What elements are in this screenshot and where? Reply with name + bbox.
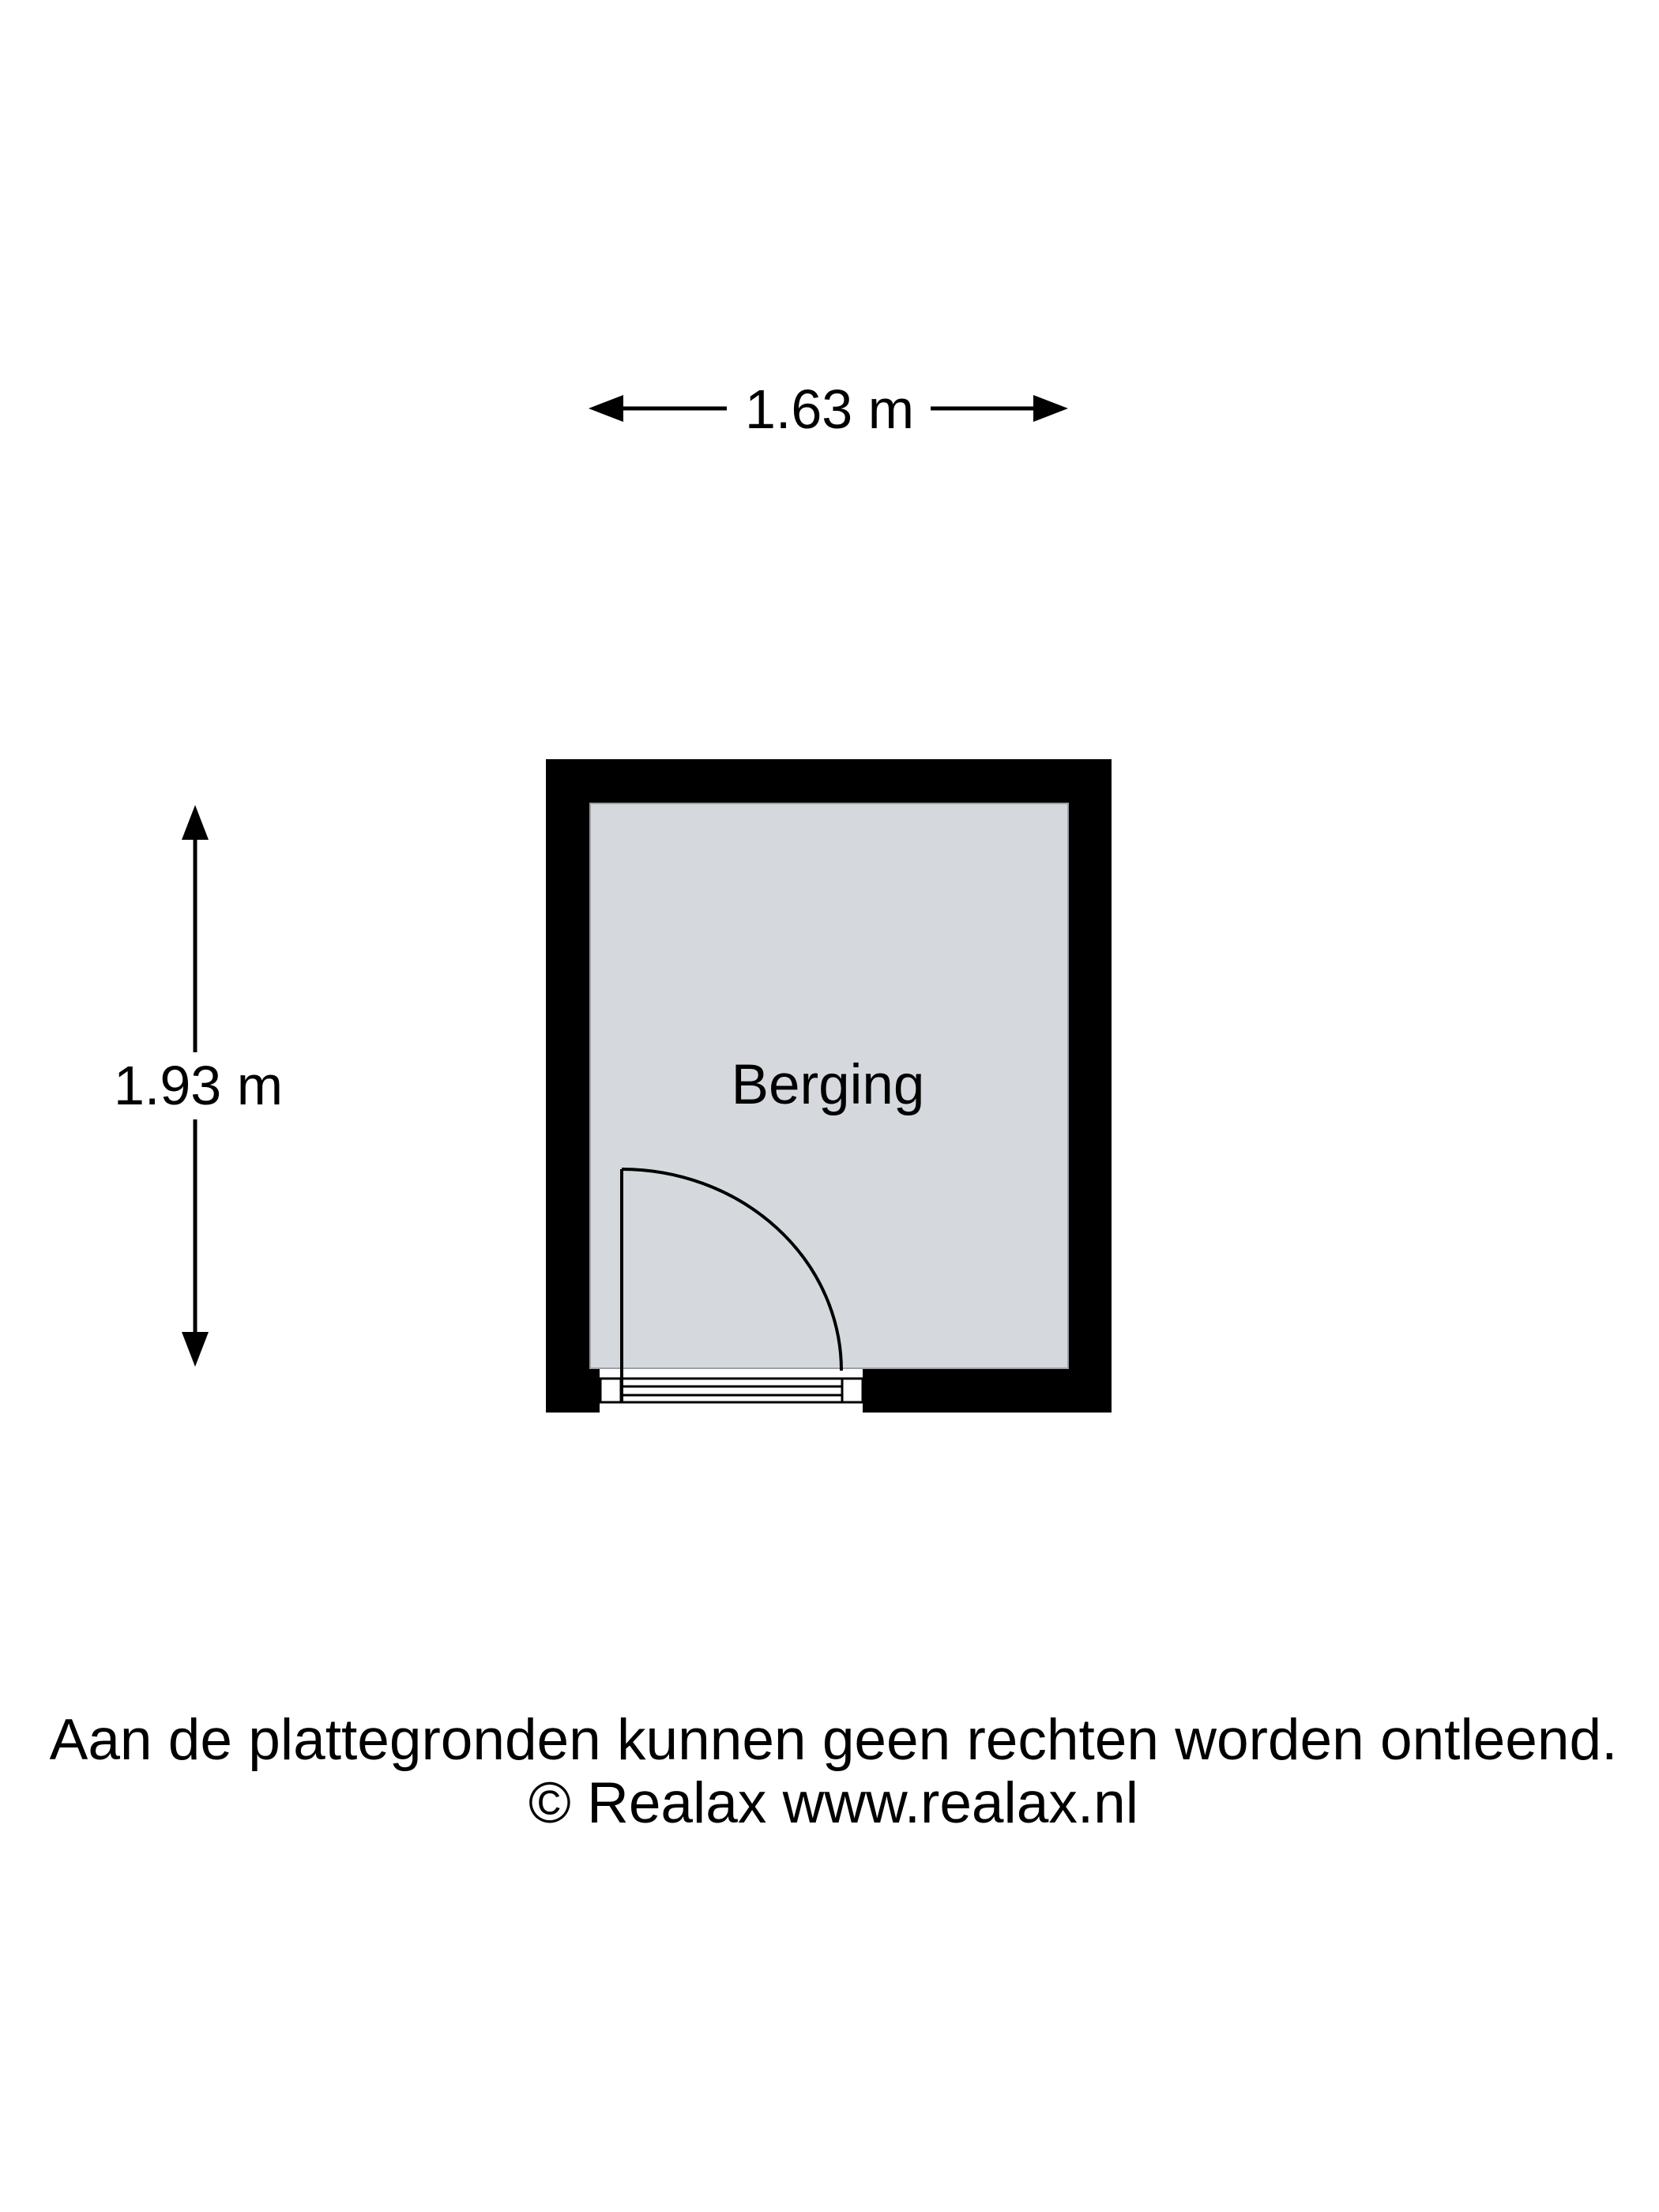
wall-bottom-right bbox=[863, 1368, 1112, 1413]
wall-right bbox=[1068, 759, 1112, 1413]
floor-plan-drawing: 1.63 m 1.93 m Berging bbox=[0, 0, 1659, 2212]
door-jamb-right bbox=[842, 1379, 863, 1402]
arrowhead-down-icon bbox=[182, 1332, 209, 1367]
room-label: Berging bbox=[732, 1054, 925, 1116]
door-jamb-left bbox=[600, 1379, 621, 1402]
door-threshold bbox=[621, 1379, 842, 1402]
arrowhead-up-icon bbox=[182, 805, 209, 840]
wall-top bbox=[546, 759, 1112, 803]
dimension-height-label: 1.93 m bbox=[114, 1055, 283, 1116]
wall-left bbox=[546, 759, 590, 1413]
dimension-height: 1.93 m bbox=[114, 805, 283, 1367]
floorplan-page: 1.63 m 1.93 m Berging bbox=[0, 0, 1659, 2212]
copyright-text: © Realax www.realax.nl bbox=[529, 1771, 1138, 1835]
arrowhead-left-icon bbox=[589, 395, 623, 422]
dimension-width: 1.63 m bbox=[589, 378, 1068, 440]
wall-bottom-left-stub bbox=[546, 1368, 600, 1413]
footer: Aan de plattegronden kunnen geen rechten… bbox=[50, 1708, 1618, 1835]
arrowhead-right-icon bbox=[1033, 395, 1068, 422]
disclaimer-text: Aan de plattegronden kunnen geen rechten… bbox=[50, 1708, 1618, 1772]
dimension-width-label: 1.63 m bbox=[745, 378, 914, 440]
